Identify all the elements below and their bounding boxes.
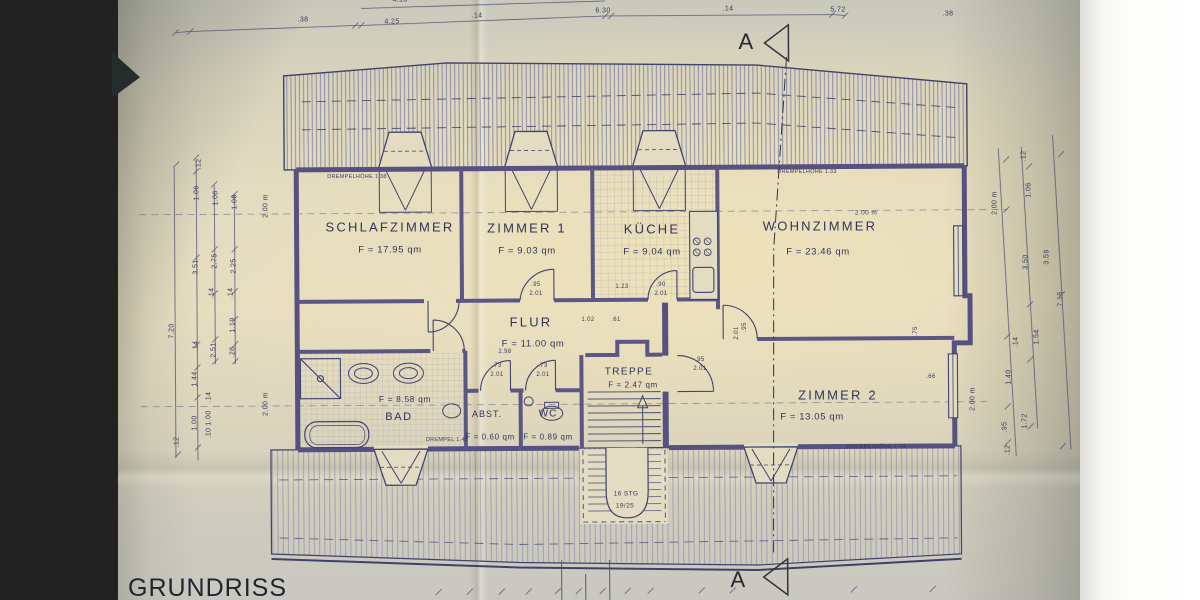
- drempelhoehe-left-label: DREMPELHÖHE 1.38: [327, 174, 387, 180]
- dim-label: 4.25: [384, 19, 399, 26]
- room-name-wc: WC: [539, 409, 558, 420]
- dim-label: 7.20: [169, 323, 176, 338]
- dim-label: .66: [926, 374, 936, 380]
- stair-wall: [665, 303, 666, 448]
- dim-label: 1.06: [194, 185, 201, 200]
- dim-label: .10: [206, 428, 213, 439]
- dim-label: 5.72: [830, 7, 845, 14]
- dim-label: .95: [531, 282, 541, 288]
- room-area-zimmer1: F = 9.03 qm: [498, 246, 556, 257]
- dim-label: 2.00 m: [992, 191, 999, 215]
- dim-label: 7.15: [1058, 291, 1065, 306]
- dim-label: 1.72: [1022, 413, 1029, 428]
- drawing-title: GRUNDRISS: [128, 574, 287, 600]
- dim-label: .14: [193, 341, 200, 352]
- dim-label: .73: [492, 363, 502, 369]
- room-name-flur: FLUR: [510, 315, 553, 330]
- dim-label: 2.00 m: [263, 194, 270, 218]
- dim-label: .95: [695, 357, 705, 363]
- dim-label: 1.02: [581, 317, 594, 323]
- dim-label: 2.25: [231, 258, 238, 273]
- dim-label: 1.06: [213, 190, 220, 205]
- dim-label: 2.01: [734, 326, 740, 339]
- section-marker-triangle-top: [764, 25, 788, 61]
- stairs-count-label: 16 STG: [614, 491, 639, 498]
- room-area-flur: F = 11.00 qm: [502, 339, 565, 350]
- dim-label: 1.54: [1034, 329, 1041, 344]
- table-background: [0, 0, 120, 600]
- dim-label: 2.75: [212, 253, 219, 268]
- white-background: [1080, 0, 1200, 600]
- dim-label: .73: [538, 363, 548, 369]
- dim-label: .75: [913, 326, 919, 336]
- dim-label: .95: [742, 322, 748, 332]
- dim-label: .90: [656, 282, 666, 288]
- dim-label: 1.00: [192, 415, 199, 430]
- drempel-bad-label: DREMPEL 1.42: [426, 437, 468, 443]
- dim-label: .12: [1021, 151, 1028, 162]
- dim-label: 1.44: [192, 371, 199, 386]
- dim-label: 1.06: [1026, 182, 1033, 197]
- dim-label: 2.00 m: [263, 392, 270, 416]
- room-name-zimmer2: ZIMMER 2: [798, 388, 878, 403]
- floor-plan-photo: SCHLAFZIMMER F = 17.95 qm ZIMMER 1 F = 9…: [0, 0, 1200, 600]
- two-meter-line-upper: [139, 210, 1007, 215]
- dim-label: 3.59: [1044, 249, 1051, 264]
- dim-label: 2.01: [490, 372, 503, 378]
- room-area-wc: F = 0.89 qm: [523, 433, 573, 442]
- dim-label: 1.19: [230, 317, 237, 332]
- room-area-kueche: F = 9.04 qm: [623, 247, 681, 258]
- dim-label: .14: [228, 288, 235, 299]
- window-right-wohnzimmer: [954, 226, 963, 296]
- room-area-abstellraum: F = 0.60 qm: [465, 433, 515, 442]
- room-area-bad: F = 8.58 qm: [379, 394, 431, 404]
- dim-label: 3.51: [193, 259, 200, 274]
- drempelhoehe-zimmer2-label: DREMPELHÖHE 1.44: [846, 444, 906, 450]
- dim-label: .14: [723, 6, 734, 13]
- room-name-zimmer1: ZIMMER 1: [487, 221, 567, 236]
- dim-label: 2.00 m: [855, 210, 877, 217]
- room-area-zimmer2: F = 13.05 qm: [780, 412, 843, 423]
- dim-label: 3.50: [1023, 254, 1030, 269]
- room-area-treppe: F = 2.47 qm: [608, 381, 658, 390]
- room-area-schlafzimmer: F = 17.95 qm: [358, 245, 421, 256]
- kitchen-counter: [689, 211, 718, 299]
- dim-label: 1.23: [615, 284, 628, 290]
- room-name-schlafzimmer: SCHLAFZIMMER: [326, 220, 455, 235]
- room-name-abstellraum: ABST.: [472, 409, 502, 419]
- dim-label: .14: [206, 392, 213, 403]
- dim-label: 4.13: [392, 0, 407, 4]
- dim-label: .14: [209, 288, 216, 299]
- dim-label: .12: [196, 159, 203, 170]
- dim-label: .12: [1005, 445, 1012, 456]
- dim-label: .38: [298, 17, 309, 24]
- section-marker-a-top: A: [738, 29, 753, 55]
- dim-label: .95: [1002, 422, 1009, 433]
- dim-label: 2.01: [693, 366, 706, 372]
- dim-label: 1.00: [206, 410, 213, 425]
- dim-label: 2.51: [211, 342, 218, 357]
- dim-label: 2.01: [536, 372, 549, 378]
- dim-label: .38: [943, 11, 954, 18]
- room-name-wohnzimmer: WOHNZIMMER: [763, 219, 877, 234]
- dim-label: .14: [472, 13, 483, 20]
- stairs-rise-run-label: 19/25: [616, 503, 634, 510]
- dim-label: 2.01: [654, 291, 667, 297]
- floor-plan-drawing: [116, 0, 1082, 600]
- room-name-bad: BAD: [385, 411, 412, 423]
- dim-label: 2.98: [498, 349, 511, 355]
- dim-label: 2.00 m: [970, 387, 977, 411]
- dim-label: 1.40: [1006, 369, 1013, 384]
- room-name-treppe: TREPPE: [605, 367, 653, 378]
- drempelhoehe-right-label: DREMPELHÖHE 1.33: [777, 169, 837, 175]
- dim-label: .12: [174, 437, 181, 448]
- dim-label: .14: [1013, 337, 1020, 348]
- window-right-zimmer2: [948, 354, 957, 418]
- dim-label: 1.06: [232, 194, 239, 209]
- section-marker-a-bottom: A: [730, 567, 745, 593]
- room-name-kueche: KÜCHE: [624, 222, 681, 237]
- dim-label: .28: [230, 347, 237, 358]
- dim-label: 2.01: [529, 291, 542, 297]
- room-area-wohnzimmer: F = 23.46 qm: [786, 247, 849, 258]
- dim-label: .61: [611, 317, 621, 323]
- dim-label: 6.30: [595, 8, 610, 15]
